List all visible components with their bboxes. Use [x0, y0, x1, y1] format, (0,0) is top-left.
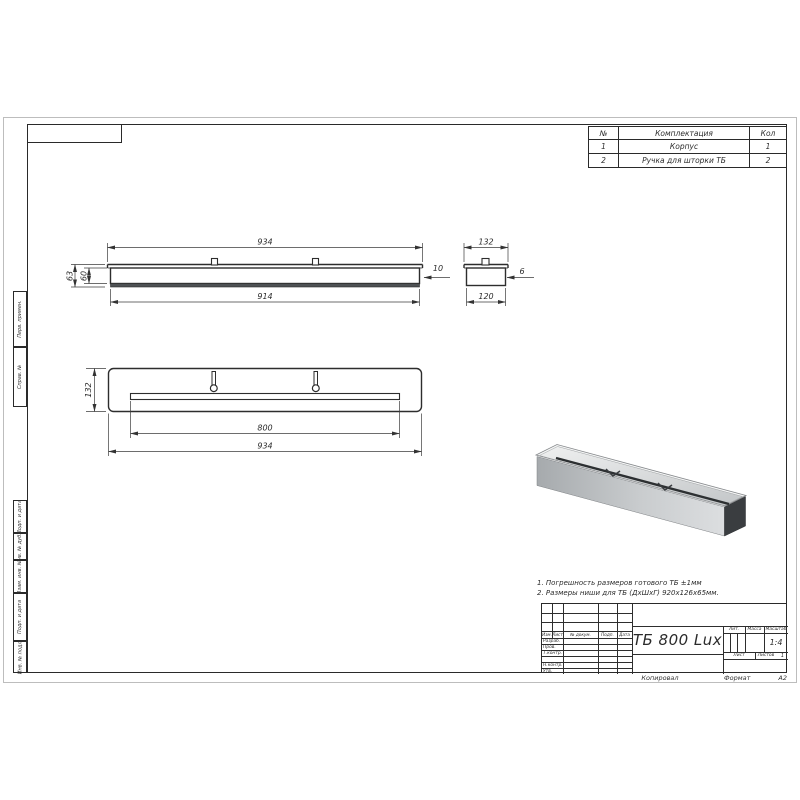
copied-label: Копировал	[620, 674, 700, 682]
front-body	[111, 268, 420, 284]
end-view	[464, 259, 508, 286]
plan-handle-left-stem	[212, 372, 216, 386]
tb-col-data: Дата	[617, 631, 632, 638]
tb-col-izm: Изм.	[542, 631, 552, 638]
tb-col-list: Лист	[552, 631, 563, 638]
tb-col-podp: Подп.	[598, 631, 617, 638]
tb-lit-label: Лит.	[723, 626, 745, 633]
tb-mass-label: Масса	[745, 626, 764, 633]
tb-row-utv: Утв.	[543, 668, 563, 674]
format-label: Формат	[724, 674, 750, 682]
tb-sheets-label: Листов	[755, 652, 777, 659]
plan-outline	[109, 369, 422, 412]
drawing-page: Перв. примен. Справ. № Подп. и дата Инв.…	[0, 0, 800, 800]
document-title: ТБ 800 Lux	[632, 626, 723, 654]
dim-end-body: 120	[478, 292, 493, 301]
dim-front-overall: 934	[257, 238, 272, 247]
tb-scale-label: Масштаб	[764, 626, 788, 633]
dim-front-height-inner: 60	[80, 271, 89, 281]
dim-plan-depth: 132	[84, 382, 93, 397]
front-tab-left	[212, 259, 218, 266]
dim-plan-slot: 800	[257, 424, 272, 433]
plan-view	[109, 369, 422, 412]
iso-view	[536, 445, 746, 537]
tb-sheet-label: Лист	[723, 652, 755, 659]
front-tab-right	[313, 259, 319, 266]
dim-front-lip: 10	[433, 264, 443, 273]
tb-row-tkontr: Т.контр.	[543, 650, 563, 656]
note-2: 2. Размеры ниши для ТБ (ДхШхГ) 920х126х6…	[537, 589, 797, 599]
title-block: Изм. Лист № докум. Подп. Дата Разраб. Пр…	[541, 603, 787, 673]
tb-sheets-value: 1	[777, 652, 788, 659]
plan-slot	[131, 394, 400, 400]
note-1: 1. Погрешность размеров готового ТБ ±1мм	[537, 579, 797, 589]
dim-front-height-outer: 63	[66, 271, 75, 281]
plan-handle-right-knob	[312, 385, 319, 392]
plan-handle-right-stem	[314, 372, 318, 386]
format-value: А2	[778, 674, 787, 682]
front-bottom-band	[111, 284, 420, 288]
dim-end-overall: 132	[478, 238, 493, 247]
end-tab	[482, 259, 489, 266]
plan-handle-left-knob	[210, 385, 217, 392]
tb-col-dokum: № докум.	[563, 631, 598, 638]
tb-scale-value: 1:4	[764, 633, 788, 652]
end-body	[467, 268, 506, 286]
dim-plan-overall: 934	[257, 442, 272, 451]
notes: 1. Погрешность размеров готового ТБ ±1мм…	[537, 579, 797, 598]
dim-end-wall: 6	[519, 267, 524, 276]
front-view	[108, 259, 423, 288]
dim-front-body: 914	[257, 292, 272, 301]
